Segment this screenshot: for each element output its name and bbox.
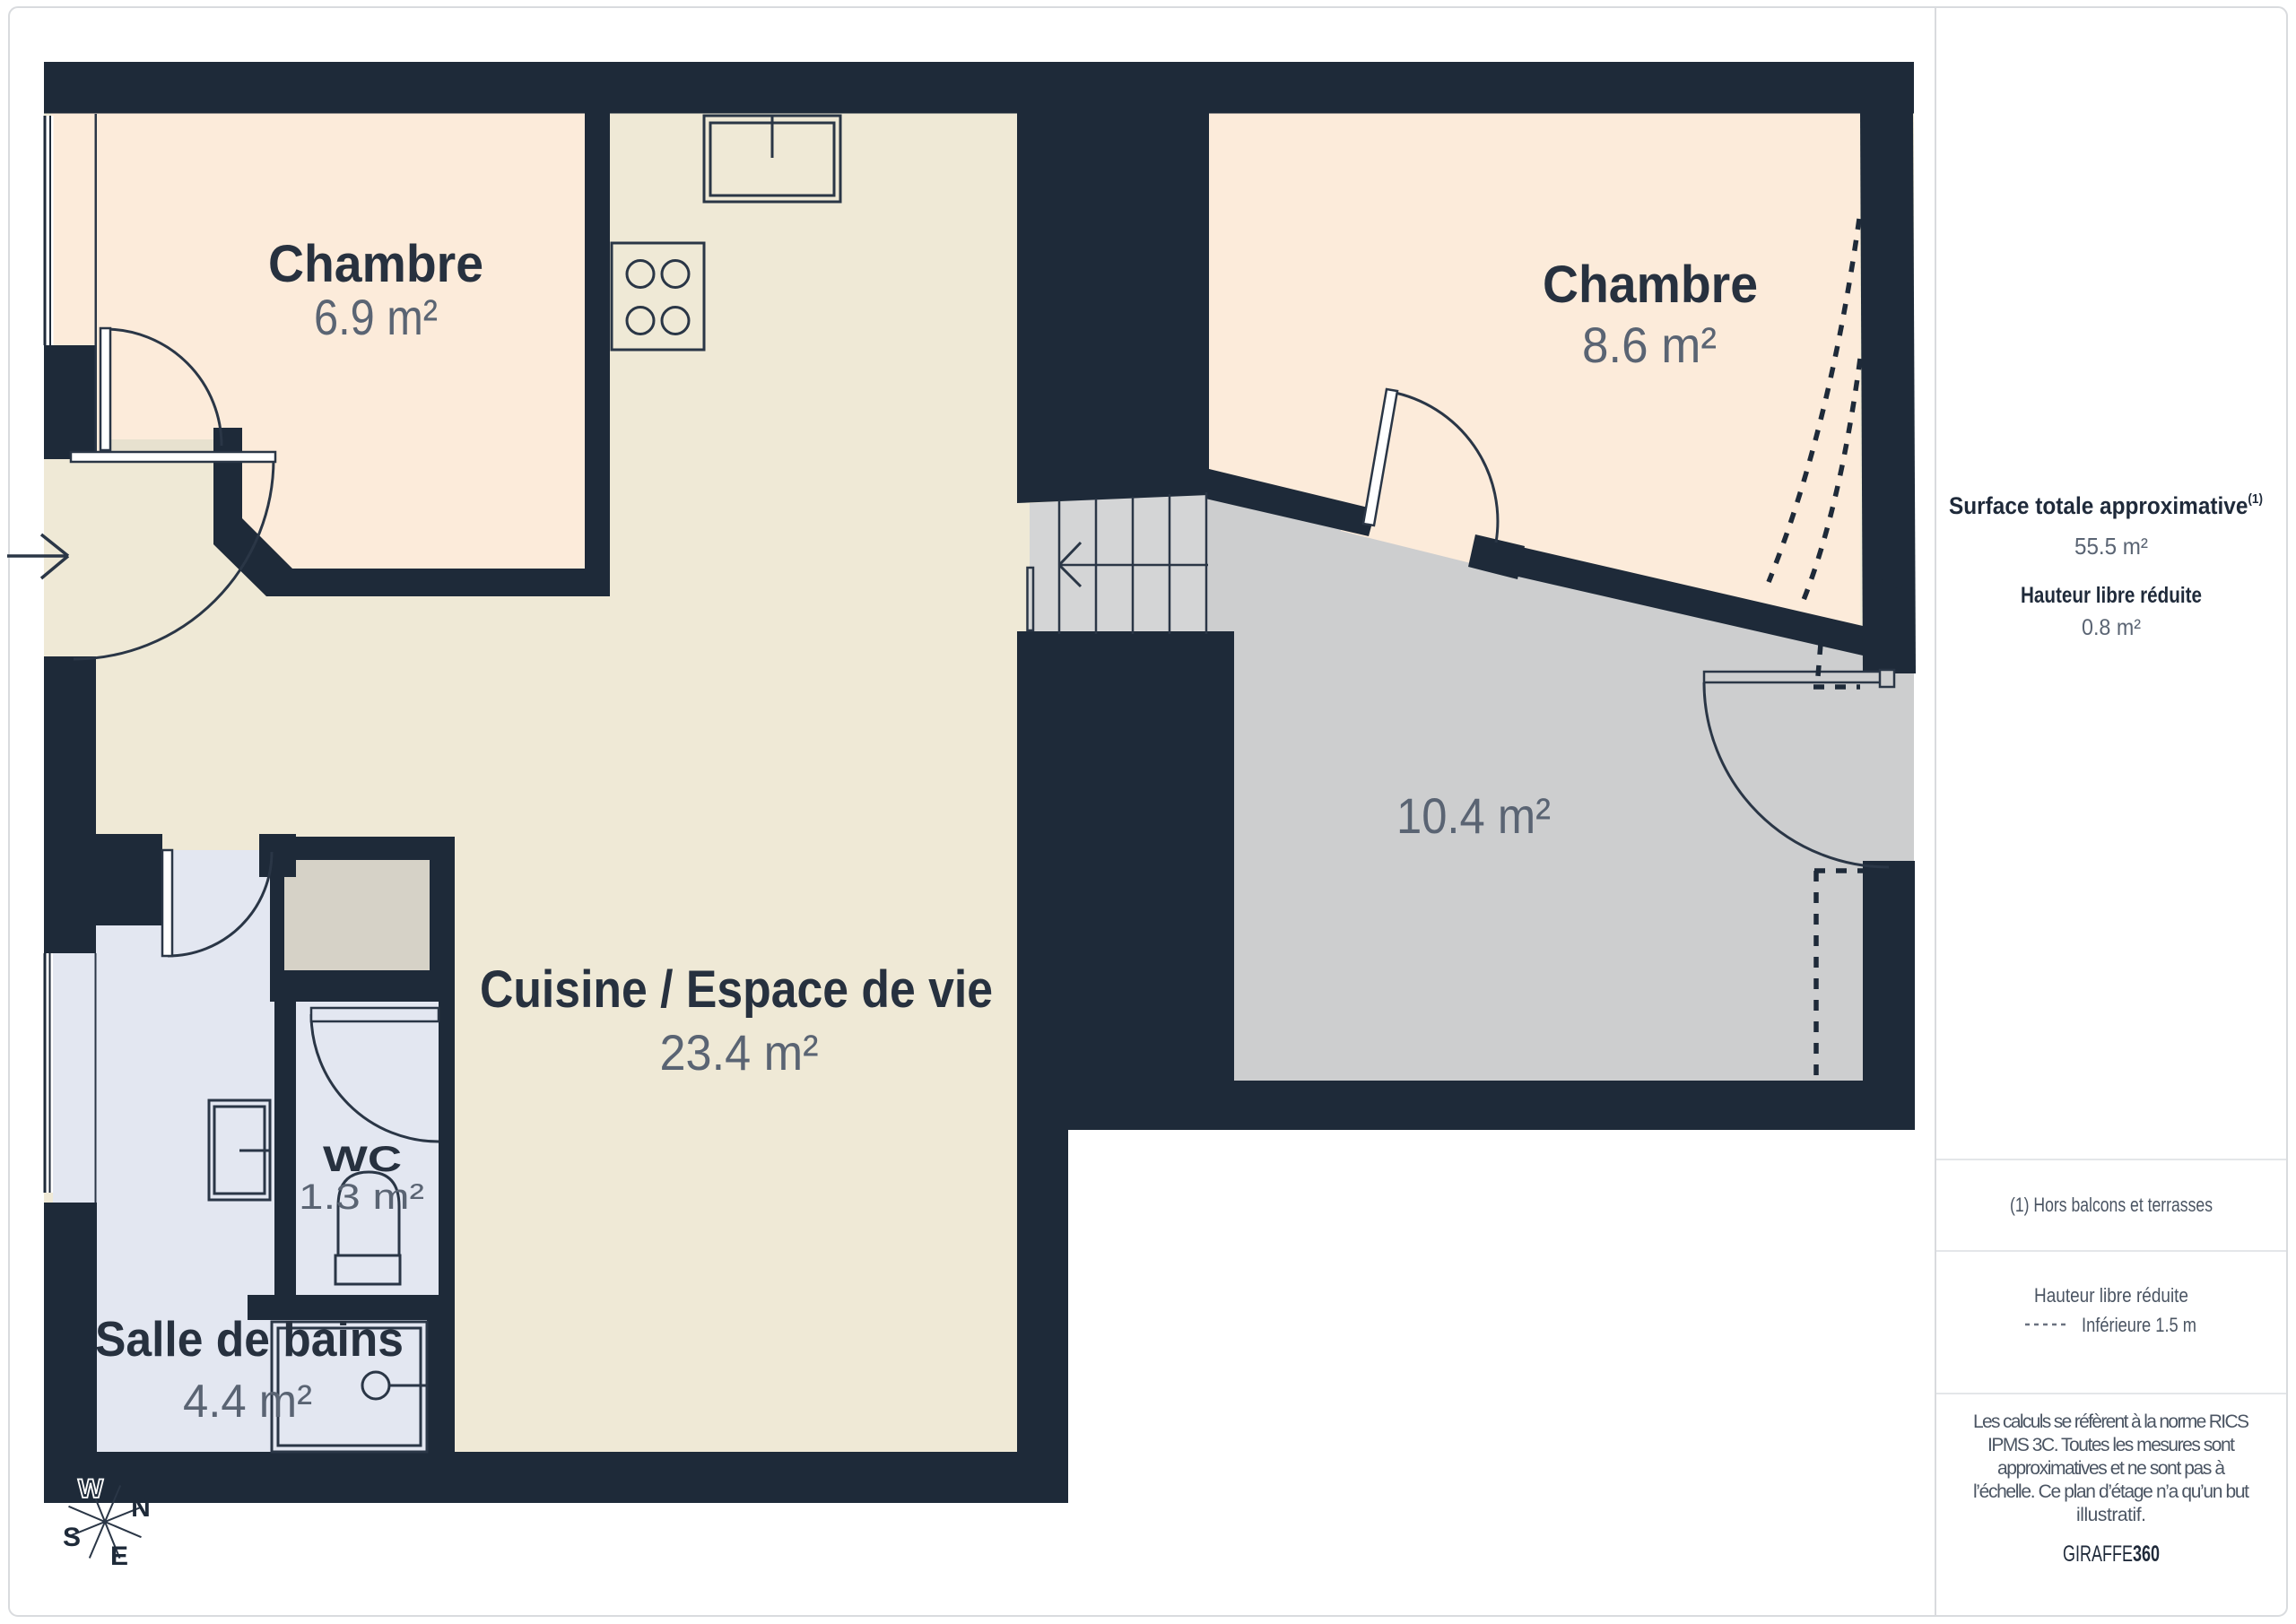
svg-text:1.3 m²: 1.3 m² [299,1177,424,1217]
svg-text:WC: WC [323,1140,402,1179]
svg-text:Salle de bains: Salle de bains [95,1311,404,1367]
svg-text:(1) Hors balcons et terrasses: (1) Hors balcons et terrasses [2010,1194,2213,1216]
svg-text:55.5 m²: 55.5 m² [2074,533,2148,560]
svg-text:approximatives et ne sont pas: approximatives et ne sont pas à [1997,1458,2225,1479]
svg-text:Inférieure 1.5 m: Inférieure 1.5 m [2082,1314,2196,1336]
svg-text:E: E [110,1541,128,1571]
svg-text:23.4 m²: 23.4 m² [660,1024,819,1081]
svg-text:Cuisine / Espace de vie: Cuisine / Espace de vie [480,960,993,1019]
svg-text:Hauteur libre réduite: Hauteur libre réduite [2021,583,2202,608]
svg-text:W: W [78,1474,104,1504]
svg-text:S: S [63,1523,81,1552]
svg-text:Les calculs se réfèrent à la n: Les calculs se réfèrent à la norme RICS [1973,1411,2249,1432]
svg-text:10.4 m²: 10.4 m² [1396,787,1551,844]
svg-text:N: N [131,1493,151,1523]
svg-text:0.8 m²: 0.8 m² [2082,615,2141,640]
svg-text:Surface totale approximative(1: Surface totale approximative(1) [1949,491,2263,519]
svg-text:l’échelle. Ce plan d’étage n’a: l’échelle. Ce plan d’étage n’a qu’un but [1973,1481,2249,1502]
svg-text:Chambre: Chambre [268,235,483,293]
svg-text:GIRAFFE360: GIRAFFE360 [2063,1541,2160,1567]
svg-text:illustratif.: illustratif. [2076,1505,2146,1525]
svg-text:Chambre: Chambre [1543,256,1758,314]
svg-text:4.4 m²: 4.4 m² [183,1376,312,1428]
svg-text:8.6 m²: 8.6 m² [1582,317,1717,373]
svg-text:Hauteur libre réduite: Hauteur libre réduite [2034,1284,2188,1307]
svg-text:6.9 m²: 6.9 m² [314,289,438,345]
svg-text:IPMS 3C. Toutes les mesures so: IPMS 3C. Toutes les mesures sont [1987,1435,2235,1455]
